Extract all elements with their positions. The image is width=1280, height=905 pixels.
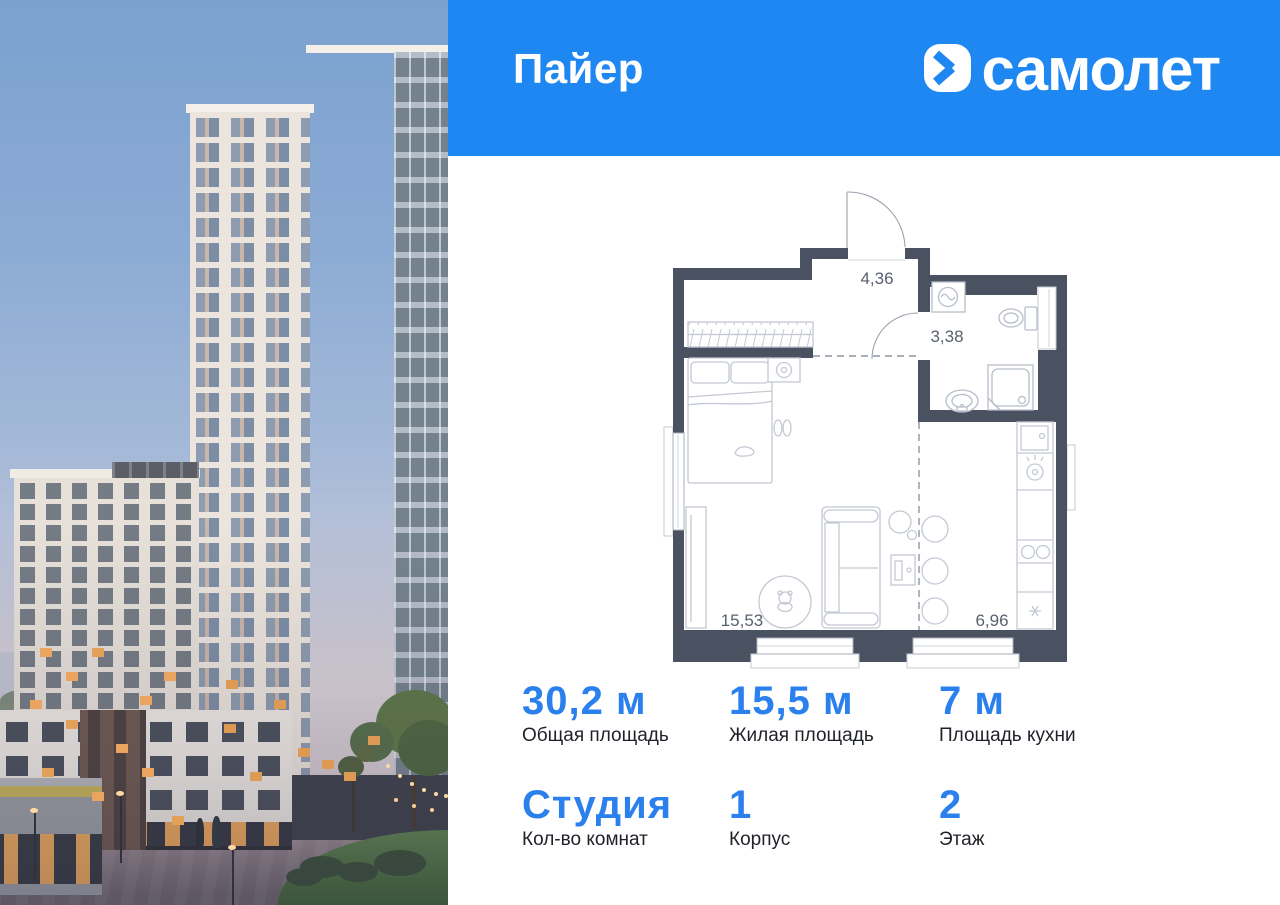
stat-label: Общая площадь [522,726,669,745]
annex-building [0,778,102,895]
stat-label: Корпус [729,830,790,849]
toilet [999,307,1037,330]
header-bar: Пайер самолет [448,0,1280,156]
sapling-trunk [352,772,355,832]
annex-yellow-stripe [0,786,102,797]
stat-label: Кол-во комнат [522,830,672,849]
stat-value: 30,2 м [522,681,669,721]
bush [374,850,426,876]
stat-building: 1 Корпус [729,785,790,849]
annex-roof [0,778,102,786]
living-room-area-label: 15,53 [721,611,764,630]
bathroom-sink [946,390,978,412]
string-lights [386,764,390,768]
stat-living-area: 15,5 м Жилая площадь [729,681,874,745]
stat-label: Площадь кухни [939,726,1076,745]
floor-mirror [686,507,706,628]
samolet-logo-icon [924,44,971,97]
street-lamp [232,848,234,905]
stat-value: 7 м [939,681,1076,721]
side-table [889,511,917,540]
washing-machine [932,282,965,312]
bathroom-area-label: 3,38 [930,327,963,346]
stat-floor: 2 Этаж [939,785,984,849]
bathroom-door [872,313,918,359]
street-lamp-light [30,808,38,813]
annex-lit-windows [0,834,102,884]
bath-niche [1038,287,1056,349]
kitchen-area-label: 6,96 [975,611,1008,630]
street-lamp-light [228,845,236,850]
pedestrian [212,816,221,848]
listing-panel: Пайер самолет [448,0,1280,905]
lit-windows [0,0,12,9]
street-lamp [120,795,122,863]
stat-label: Этаж [939,830,984,849]
stat-value: 1 [729,785,790,825]
slippers [774,420,791,436]
tv-stand [891,555,915,585]
pedestrian [196,818,204,848]
street-lamp [34,812,36,882]
entry-door [847,192,905,260]
sapling-foliage [356,744,376,762]
bed [688,358,772,483]
kitchen-counter [1017,422,1053,629]
bush [338,862,378,882]
brand-logo: самолет [924,44,1220,96]
listing-card: Пайер самолет [0,0,1280,905]
stat-total-area: 30,2 м Общая площадь [522,681,669,745]
hallway-area-label: 4,36 [860,269,893,288]
stat-value: 15,5 м [729,681,874,721]
shower [988,365,1033,410]
sofa [822,507,880,628]
wardrobe [688,322,813,347]
stat-value: 2 [939,785,984,825]
stat-rooms: Студия Кол-во комнат [522,785,672,849]
building-photo [0,0,448,905]
brand-name: самолет [981,43,1220,97]
school-windows-row [6,756,286,776]
stat-value: Студия [522,785,672,825]
nightstand [768,358,800,382]
bush [286,868,322,886]
stools [922,516,948,624]
project-title: Пайер [513,48,644,90]
stat-kitchen-area: 7 м Площадь кухни [939,681,1076,745]
tree-trunk [412,776,416,828]
school-windows-row [6,722,286,742]
stat-label: Жилая площадь [729,726,874,745]
floor-plan: 4,36 3,38 15,53 6,96 [660,165,1080,685]
pouf [759,576,811,628]
street-lamp-light [116,791,124,796]
